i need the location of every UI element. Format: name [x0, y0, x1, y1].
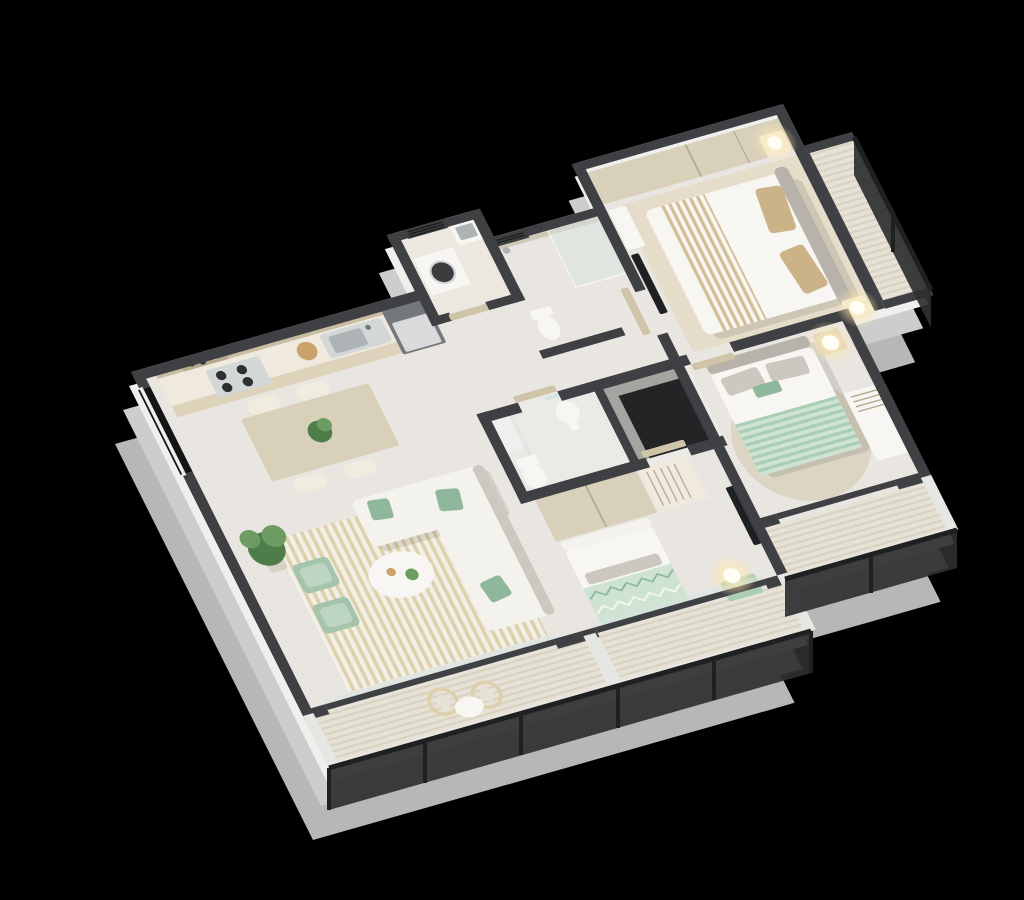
floor-plan-stage	[0, 0, 1024, 900]
floor-plan-render	[0, 0, 1024, 900]
